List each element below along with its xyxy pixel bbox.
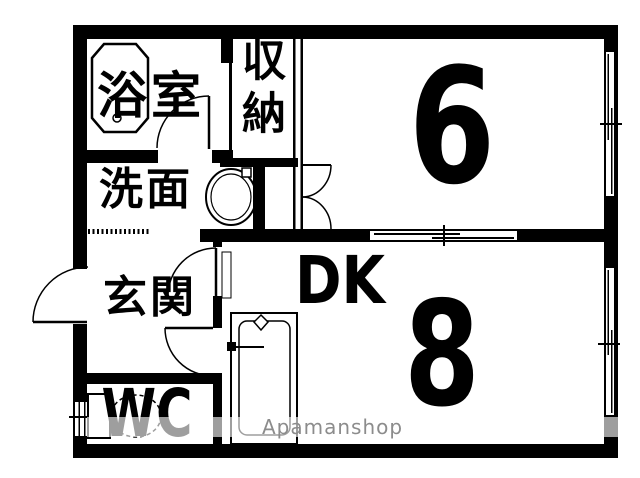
wall-left-lower — [73, 436, 87, 458]
wall-room6-left-b — [301, 39, 304, 229]
watermark-text: Apamanshop — [262, 418, 403, 437]
room-label-bathroom: 浴室 — [97, 71, 205, 121]
room-label-washroom: 洗面 — [99, 168, 193, 212]
wall-room6-left-a — [293, 39, 296, 229]
wall-top — [73, 25, 618, 39]
dk-wall-niche — [222, 252, 231, 298]
washbasin-icon — [206, 168, 256, 225]
watermark-band: Apamanshop — [87, 417, 618, 437]
wall-washroom-right — [253, 163, 265, 229]
room-label-closet: 収納 — [237, 37, 281, 143]
wall-closet-left — [229, 39, 232, 158]
closet-double-door-arcs — [303, 165, 331, 229]
room-label-entrance: 玄関 — [103, 276, 197, 320]
floorplan-canvas: 浴室 収納 洗面 玄関 WC DK 6 8 Apamanshop — [0, 0, 640, 478]
room-label-dk: DK — [295, 248, 385, 314]
room-size-dk: 8 — [404, 283, 480, 428]
entrance-door-arc — [33, 267, 88, 322]
room-size-main-room: 6 — [409, 47, 496, 207]
wall-genkan-dk-2 — [213, 296, 222, 328]
room-label-wc: WC — [102, 381, 193, 447]
genkan-dk-door-arc — [165, 328, 213, 376]
wall-left-upper — [73, 25, 87, 269]
wall-bath-bottom-left — [87, 150, 158, 163]
wall-genkan-dk-1 — [213, 242, 222, 247]
floorplan-drawing — [0, 0, 640, 478]
sliding-door-room6-dk — [370, 225, 517, 246]
wall-left-mid — [73, 324, 87, 402]
window-room6-right — [600, 52, 622, 196]
